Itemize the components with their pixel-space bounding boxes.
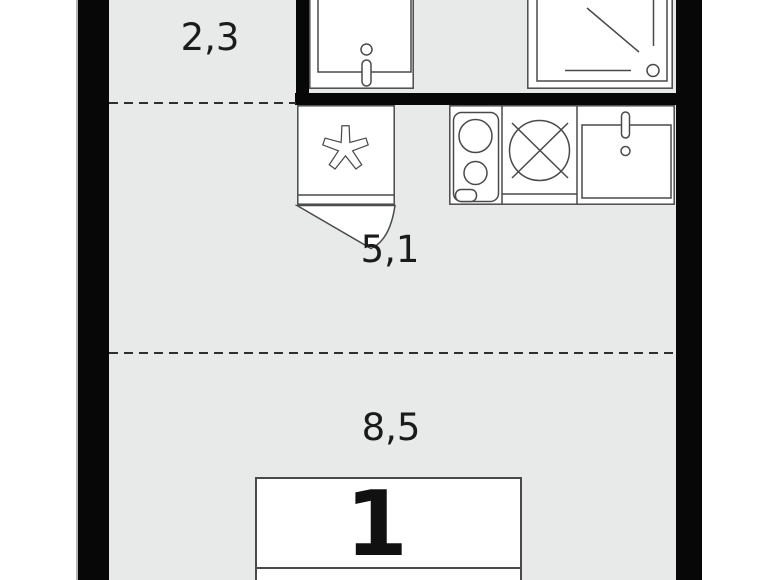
bathroom-wall-vertical [296,0,309,95]
wall-left [78,0,109,580]
unit-number: 1 [245,479,508,567]
hob-control-icon [456,190,477,202]
shower [527,0,673,89]
washbasin [309,0,414,89]
zone-divider-dashed-line-middle [109,352,676,354]
area-label-kitchen: 5,1 [335,228,445,272]
wall-right [676,0,702,580]
washbasin-faucet-icon [362,60,371,86]
zone-divider-dashed-line-top [109,102,296,104]
floor-plan: 1 2,3 5,1 8,5 [0,0,780,580]
shower-drain-icon [647,65,659,77]
kitchen-counter [449,105,675,205]
sink-faucet-icon [622,112,630,138]
area-label-hallway: 2,3 [155,16,265,60]
bed: 1 [255,477,522,580]
bed-headboard-line [257,567,520,569]
bathroom-wall-horizontal [295,93,676,105]
area-label-living-room: 8,5 [336,406,446,450]
washing-machine [297,105,395,205]
